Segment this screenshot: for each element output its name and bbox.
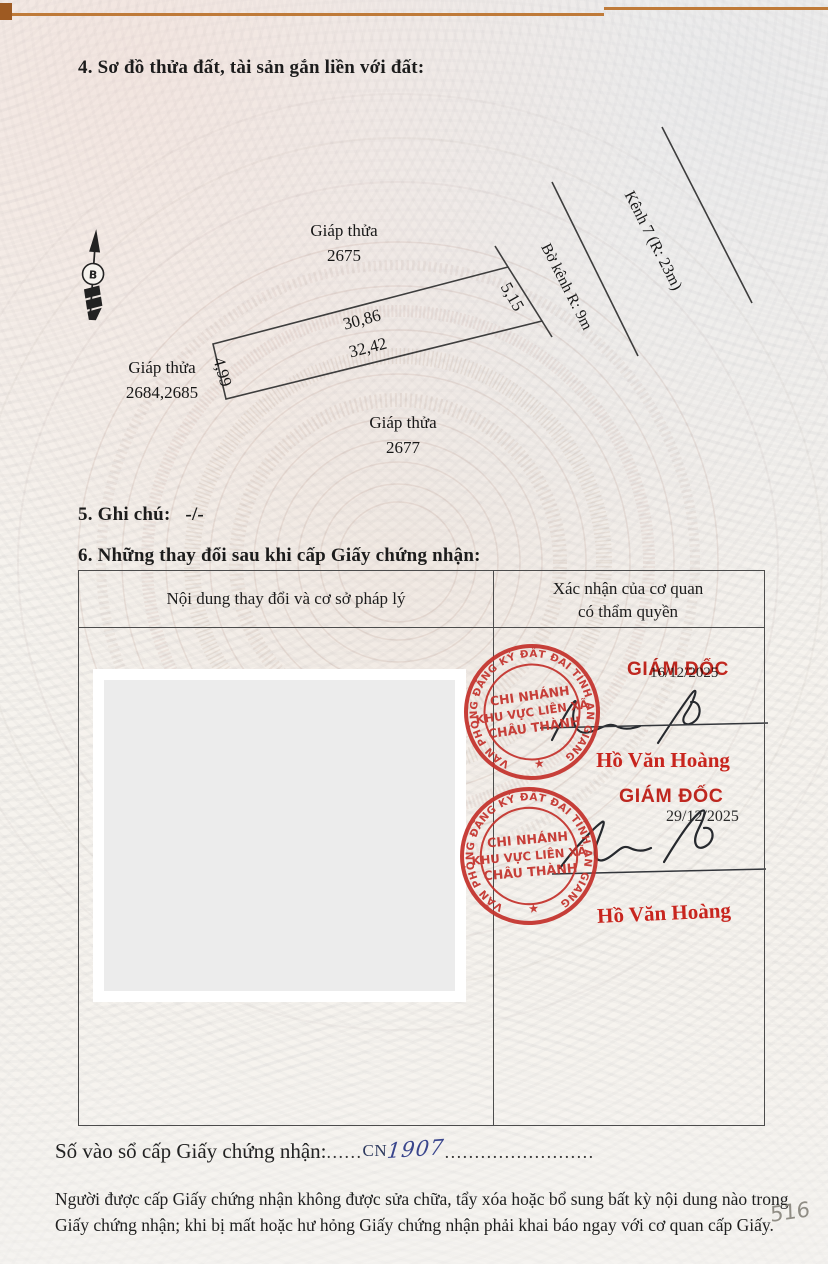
section5-value: -/- [185,504,204,525]
table-header-confirmation-line1: Xác nhận của cơ quan [494,578,762,601]
adjacent-parcel-top: Giáp thửa 2675 [279,219,409,268]
registry-dots-before: ...... [327,1142,363,1162]
adjacent-parcel-bottom-label: Giáp thửa [340,411,466,436]
adjacent-parcel-bottom: Giáp thửa 2677 [340,411,466,460]
canal-label: Kênh 7 (R: 23m) [607,163,698,318]
table-header-confirmation-line2: có thẩm quyền [494,601,762,624]
certificate-page: 4. Sơ đồ thửa đất, tài sản gắn liền với … [0,0,828,1264]
footer-note-line2: Giấy chứng nhận; khi bị mất hoặc hư hỏng… [55,1212,777,1238]
adjacent-parcel-left-label: Giáp thửa [104,356,220,381]
dimension-right-edge: 5,15 [491,270,533,323]
office-stamp-2: VĂN PHÒNG ĐĂNG KÝ ĐẤT ĐAI TỈNH AN GIANG … [452,779,606,933]
footer-note: Người được cấp Giấy chứng nhận không đượ… [55,1186,777,1239]
approval-1-title: GIÁM ĐỐC [627,659,729,681]
scan-edge-line-right [604,7,828,10]
redacted-content-box [93,669,466,1002]
office-stamp-1: VĂN PHÒNG ĐĂNG KÝ ĐẤT ĐAI TỈNH AN GIANG … [453,633,611,791]
registry-handwritten-number: 1907 [386,1135,446,1163]
adjacent-parcel-top-number: 2675 [279,244,409,269]
registry-dots-after: ......................... [445,1142,595,1162]
north-arrow-icon [79,228,107,320]
stamp-star-icon: ★ [528,901,540,916]
registry-prefix: CN [363,1141,388,1160]
section5-label: 5. Ghi chú: [78,504,170,525]
north-arrow-letter: B [88,268,97,282]
page-number: 516 [770,1197,811,1227]
scan-edge-line-left [0,13,604,16]
redacted-content-inner [104,680,455,991]
adjacent-parcel-left: Giáp thửa 2684,2685 [104,356,220,405]
approval-2-title: GIÁM ĐỐC [619,785,723,808]
stamp-star-icon: ★ [533,756,546,771]
scan-edge-corner [0,3,12,20]
section6-title: 6. Những thay đổi sau khi cấp Giấy chứng… [78,545,481,567]
table-header-content: Nội dung thay đổi và cơ sở pháp lý [79,589,493,609]
adjacent-parcel-left-number: 2684,2685 [104,381,220,406]
table-header-confirmation: Xác nhận của cơ quan có thẩm quyền [494,578,762,624]
footer-note-line1: Người được cấp Giấy chứng nhận không đượ… [55,1186,777,1212]
registry-number-line: Số vào sổ cấp Giấy chứng nhận:......CN19… [55,1139,595,1164]
section4-title: 4. Sơ đồ thửa đất, tài sản gắn liền với … [78,57,424,79]
approval-2-date: 29/12/2025 [666,808,739,826]
adjacent-parcel-top-label: Giáp thửa [279,219,409,244]
registry-label: Số vào sổ cấp Giấy chứng nhận: [55,1139,327,1163]
section5-title: 5. Ghi chú: -/- [78,504,204,526]
adjacent-parcel-bottom-number: 2677 [340,436,466,461]
canal-bank-label: Bờ kênh R: 9m [526,221,606,354]
